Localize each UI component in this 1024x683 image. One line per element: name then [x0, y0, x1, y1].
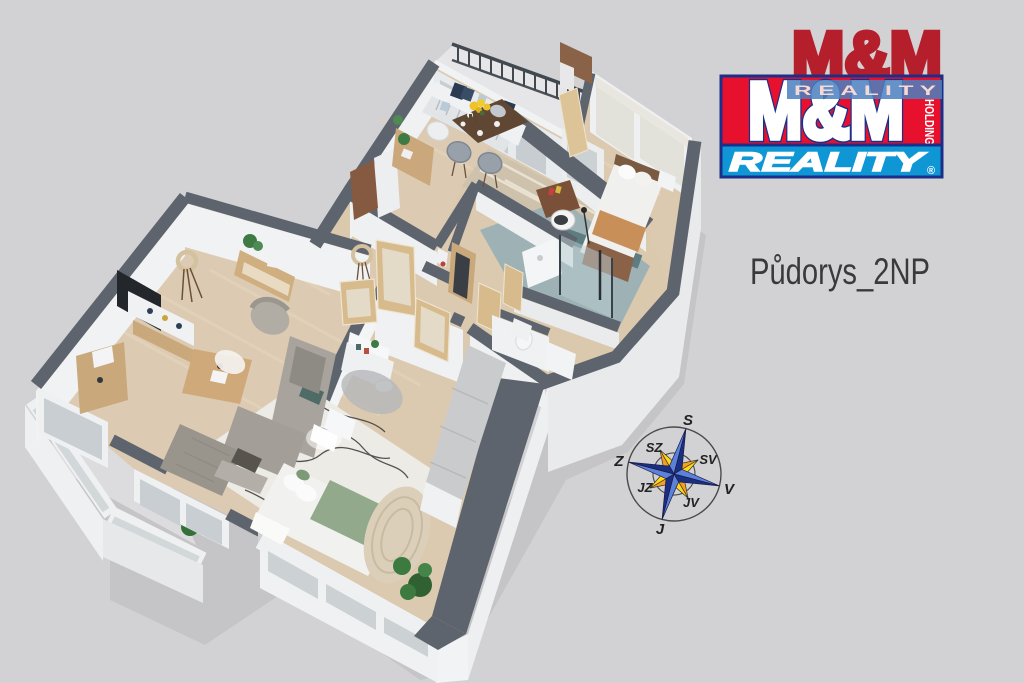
- svg-text:R E A L I T Y: R E A L I T Y: [794, 83, 936, 98]
- svg-text:REALITY: REALITY: [729, 147, 928, 177]
- svg-text:JZ: JZ: [637, 480, 653, 495]
- svg-text:SZ: SZ: [646, 440, 664, 455]
- svg-text:Půdorys_2NP: Půdorys_2NP: [750, 251, 930, 292]
- svg-text:JV: JV: [683, 495, 700, 510]
- svg-text:M&M: M&M: [748, 66, 904, 155]
- svg-text:J: J: [656, 521, 665, 538]
- svg-text:S: S: [683, 412, 693, 429]
- svg-text:HOLDING: HOLDING: [922, 99, 936, 145]
- svg-text:®: ®: [927, 165, 935, 177]
- svg-text:SV: SV: [699, 452, 718, 467]
- svg-text:Z: Z: [613, 453, 624, 470]
